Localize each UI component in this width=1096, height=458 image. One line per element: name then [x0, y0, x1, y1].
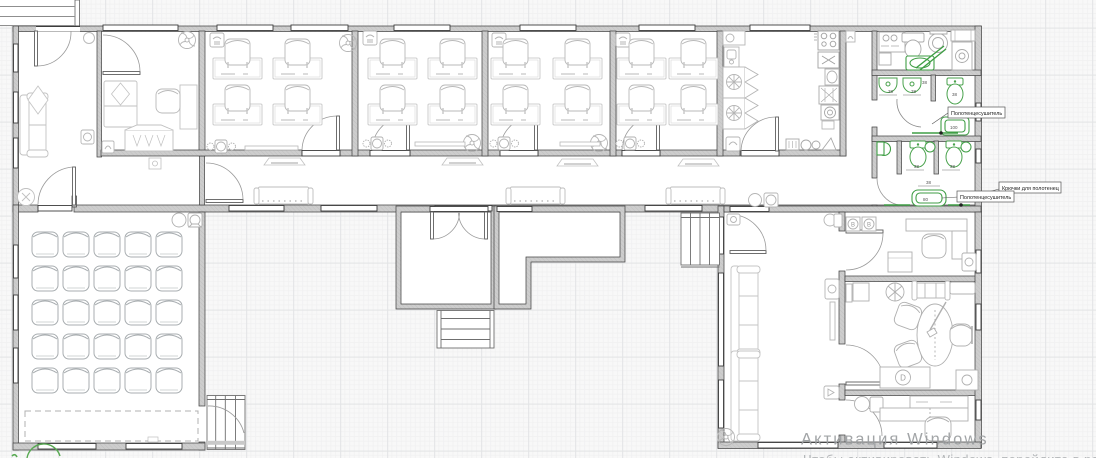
svg-text:38: 38	[950, 164, 956, 169]
svg-text:Полотенцесушитель: Полотенцесушитель	[951, 111, 1002, 117]
svg-text:100: 100	[950, 125, 958, 130]
svg-text:D: D	[900, 374, 906, 383]
svg-text:38: 38	[914, 164, 920, 169]
svg-text:B: B	[851, 223, 855, 229]
svg-text:Полотенцесушитель: Полотенцесушитель	[960, 195, 1011, 201]
svg-text:38: 38	[911, 89, 917, 94]
svg-text:38: 38	[926, 180, 932, 185]
svg-text:B: B	[867, 223, 871, 229]
svg-text:38: 38	[952, 92, 958, 97]
svg-text:Активация Windows: Активация Windows	[801, 431, 989, 449]
svg-text:38: 38	[922, 80, 928, 85]
svg-text:Чтобы активировать Windows, пе: Чтобы активировать Windows, перейдите в …	[803, 452, 1096, 458]
svg-text:38: 38	[888, 89, 894, 94]
svg-text:80: 80	[923, 197, 929, 202]
